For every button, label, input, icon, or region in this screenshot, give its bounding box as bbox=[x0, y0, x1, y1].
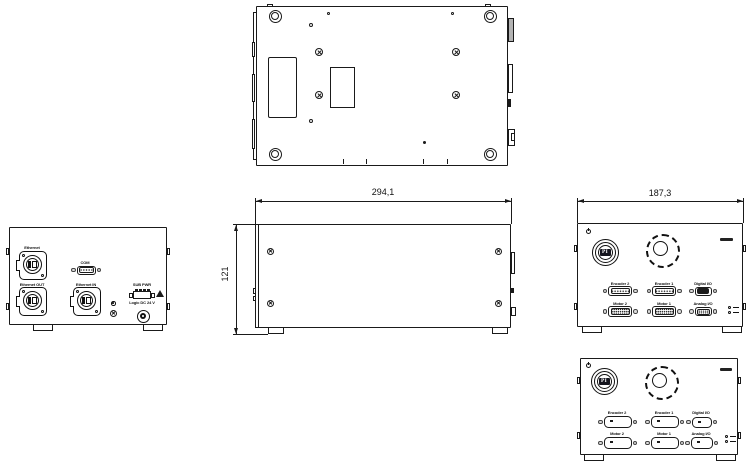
label-logic-dc: Logic DC 24 V bbox=[117, 300, 167, 305]
power-icon bbox=[586, 363, 591, 368]
extension-line bbox=[511, 198, 512, 224]
hole bbox=[327, 12, 330, 15]
view-front-panel-detailed: 187,3 PI Encoder 2 Encoder 1 Digital I/O… bbox=[572, 190, 750, 338]
circular-connector bbox=[646, 234, 680, 268]
tick-mark bbox=[343, 159, 344, 164]
technical-drawing-page: { "title": "Multi-view technical drawing… bbox=[0, 0, 750, 468]
dimension-width: 187,3 bbox=[577, 188, 743, 198]
edge-bump bbox=[574, 245, 577, 252]
screw-icon bbox=[495, 248, 502, 255]
left-edge-slot bbox=[252, 74, 255, 102]
ethernet-connector bbox=[19, 251, 47, 280]
switch-profile bbox=[508, 99, 511, 107]
dimension-height: 121 bbox=[220, 265, 230, 283]
arrowhead bbox=[256, 199, 262, 203]
edge-tab bbox=[267, 4, 273, 7]
edge-bump bbox=[738, 377, 741, 384]
foot bbox=[143, 325, 163, 332]
screw-icon bbox=[452, 48, 460, 56]
edge-bump bbox=[574, 303, 577, 310]
dimension-line bbox=[236, 224, 237, 334]
tick-mark bbox=[423, 159, 424, 164]
edge-bump bbox=[577, 377, 580, 384]
model-label-smudge bbox=[720, 238, 733, 241]
status-legend bbox=[728, 306, 739, 316]
arrowhead bbox=[578, 199, 584, 203]
label-analog-io: Analog I/O bbox=[685, 301, 721, 306]
led-indicator bbox=[111, 301, 116, 306]
foot-inner bbox=[486, 12, 494, 20]
side-view-outline bbox=[258, 224, 511, 328]
digital-io-connector bbox=[686, 417, 717, 428]
foot bbox=[33, 325, 53, 332]
screw-icon bbox=[315, 91, 323, 99]
ethernet-out-connector bbox=[19, 287, 47, 316]
arrowhead bbox=[234, 225, 238, 231]
foot bbox=[716, 455, 736, 462]
power-icon bbox=[586, 229, 591, 234]
motor-1-connector bbox=[645, 437, 684, 449]
foot bbox=[492, 328, 508, 334]
edge-bump bbox=[6, 248, 9, 255]
foot bbox=[582, 327, 602, 334]
screw-icon bbox=[495, 300, 502, 307]
cutout-rect bbox=[268, 57, 297, 118]
label-com: COM bbox=[65, 260, 105, 265]
screw-icon bbox=[452, 91, 460, 99]
foot-inner bbox=[486, 150, 494, 158]
dimension-line bbox=[577, 201, 743, 202]
edge-bump bbox=[743, 245, 746, 252]
digital-io-connector bbox=[689, 287, 717, 296]
label-analog-io: Analog I/O bbox=[683, 431, 719, 436]
edge-bump bbox=[743, 303, 746, 310]
view-top bbox=[250, 2, 516, 172]
screw-icon bbox=[315, 48, 323, 56]
switch-profile bbox=[511, 288, 514, 293]
label-motor-2: Motor 2 bbox=[599, 431, 635, 436]
circular-connector bbox=[645, 366, 679, 400]
edge-bump bbox=[253, 296, 256, 301]
left-edge-slot bbox=[252, 119, 255, 149]
hole bbox=[309, 23, 313, 27]
arrowhead bbox=[234, 328, 238, 334]
connector-profile bbox=[508, 64, 513, 93]
status-dot-icon bbox=[725, 435, 728, 438]
tick-mark bbox=[366, 159, 367, 164]
edge-bump bbox=[167, 248, 170, 255]
extension-line bbox=[233, 334, 268, 335]
status-dot-icon bbox=[728, 311, 731, 314]
status-dot-icon bbox=[728, 306, 731, 309]
analog-io-connector bbox=[689, 307, 717, 316]
power-button: PI bbox=[592, 239, 619, 266]
label-digital-io: Digital I/O bbox=[683, 410, 719, 415]
jack-profile bbox=[511, 307, 516, 316]
hole bbox=[309, 119, 313, 123]
encoder-1-connector bbox=[647, 286, 682, 296]
model-label-smudge bbox=[720, 368, 732, 371]
pi-logo: PI bbox=[599, 378, 610, 385]
analog-io-connector bbox=[685, 437, 718, 449]
edge-tab bbox=[485, 4, 491, 7]
motor-1-connector bbox=[647, 306, 682, 317]
dimension-depth: 294,1 bbox=[300, 187, 466, 197]
status-dot-icon bbox=[725, 440, 728, 443]
label-encoder-2: Encoder 2 bbox=[599, 410, 635, 415]
foot bbox=[722, 327, 742, 334]
edge-bump bbox=[167, 303, 170, 310]
encoder-2-connector bbox=[603, 286, 638, 296]
encoder-2-connector bbox=[598, 416, 637, 428]
foot bbox=[584, 455, 604, 462]
motor-2-connector bbox=[598, 437, 637, 449]
view-side: 294,1 121 bbox=[220, 185, 520, 340]
label-digital-io: Digital I/O bbox=[685, 281, 721, 286]
dc-power-jack bbox=[137, 310, 150, 323]
pi-logo: PI bbox=[600, 249, 611, 256]
encoder-1-connector bbox=[645, 416, 684, 428]
view-rear-panel: Ethernet COM Ethernet OUT Ethernet IN SU… bbox=[5, 220, 185, 338]
connector-profile bbox=[511, 252, 515, 274]
hole bbox=[451, 12, 454, 15]
ground-screw-icon bbox=[110, 310, 118, 318]
edge-bump bbox=[253, 288, 256, 294]
power-button: PI bbox=[591, 368, 618, 395]
ethernet-in-connector bbox=[73, 287, 101, 316]
screw-icon bbox=[267, 300, 274, 307]
foot-inner bbox=[271, 12, 279, 20]
screw-icon bbox=[267, 248, 274, 255]
left-edge-slot bbox=[252, 42, 255, 57]
label-motor-1: Motor 1 bbox=[646, 431, 682, 436]
arrowhead bbox=[737, 199, 743, 203]
label-sub-pwr: SUB PWR bbox=[122, 282, 162, 287]
tick-mark bbox=[447, 159, 448, 164]
warning-icon bbox=[156, 290, 164, 297]
edge-bump bbox=[6, 303, 9, 310]
heatsink-profile bbox=[508, 18, 514, 42]
label-ethernet: Ethernet bbox=[12, 245, 52, 250]
foot-inner bbox=[271, 150, 279, 158]
edge-bump bbox=[577, 432, 580, 439]
jack-profile-inner bbox=[511, 133, 515, 141]
motor-2-connector bbox=[603, 306, 638, 317]
com-connector bbox=[71, 266, 101, 275]
cutout-rect bbox=[330, 67, 355, 108]
view-front-panel-simplified: PI Encoder 2 Encoder 1 Digital I/O Motor… bbox=[575, 352, 747, 466]
edge-bump bbox=[738, 432, 741, 439]
arrowhead bbox=[505, 199, 511, 203]
status-legend bbox=[725, 435, 736, 445]
foot bbox=[268, 328, 284, 334]
front-bezel-edge bbox=[255, 224, 259, 328]
hole bbox=[423, 141, 426, 144]
dimension-line bbox=[255, 201, 511, 202]
label-encoder-1: Encoder 1 bbox=[646, 410, 682, 415]
